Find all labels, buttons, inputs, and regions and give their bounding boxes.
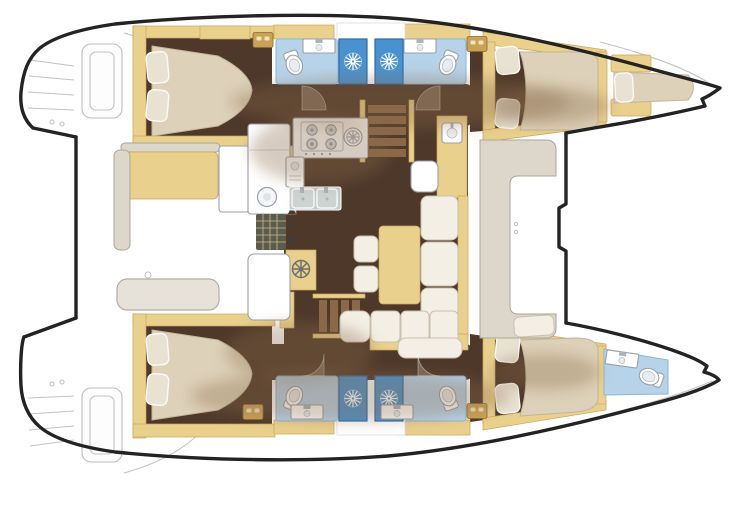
nav-seat xyxy=(411,161,438,192)
stair-rail xyxy=(313,294,365,298)
pillow-icon xyxy=(146,89,170,122)
hatch-mat xyxy=(256,214,286,250)
cabin-wall xyxy=(133,26,146,148)
fwd-cockpit-c-bench xyxy=(480,140,556,338)
sink-drain xyxy=(302,198,305,201)
wardrobe-drawers-icon xyxy=(467,37,487,52)
saloon-side-wall xyxy=(458,196,468,338)
haze-blob xyxy=(225,322,375,382)
deck-fitting xyxy=(514,222,517,225)
cockpit-bench-cushion xyxy=(124,152,218,199)
sink-drain xyxy=(326,198,329,201)
sink-faucet xyxy=(324,187,328,193)
cockpit-side-bench xyxy=(114,150,130,250)
forward-cockpit xyxy=(480,140,556,338)
cockpit-side-table xyxy=(219,146,249,212)
head-cabinet xyxy=(274,420,334,434)
settee-seat-cushion xyxy=(401,311,429,342)
haze-blob xyxy=(250,116,390,184)
cabin-wall xyxy=(133,314,146,438)
port-helm-seat xyxy=(82,44,122,118)
cockpit-bench-back xyxy=(121,143,220,152)
washbasin-icon xyxy=(404,39,436,53)
washbasin-icon xyxy=(303,39,335,53)
haze-blob xyxy=(190,370,510,422)
wet-bar-sink-drain xyxy=(263,193,271,201)
cabin-wall xyxy=(133,424,275,437)
dinette-table xyxy=(379,226,420,304)
settee-seat-cushion xyxy=(430,311,458,342)
stool xyxy=(354,236,378,262)
pillow-icon xyxy=(146,373,170,406)
sink-faucet xyxy=(300,187,304,193)
floor-plan-svg xyxy=(0,0,733,506)
helm-wheel-icon xyxy=(293,261,310,278)
settee-back-cushion xyxy=(421,242,458,286)
forward-crossbeam-outline xyxy=(559,133,566,323)
deck-fitting xyxy=(514,230,517,233)
haze-blob xyxy=(490,354,600,390)
settee-back-cushion xyxy=(421,196,458,240)
head-cabinet xyxy=(398,420,470,435)
pillow-icon xyxy=(495,46,521,75)
head-cabinet xyxy=(274,25,334,39)
cockpit-locker xyxy=(248,254,290,320)
stool xyxy=(354,266,378,292)
pillow-icon xyxy=(614,73,633,103)
shower-divider xyxy=(367,30,374,84)
shower-rose-icon xyxy=(381,53,398,70)
catamaran-floor-plan xyxy=(0,0,733,506)
cockpit-table xyxy=(117,279,219,310)
shower-rose-icon xyxy=(345,53,362,70)
wardrobe-drawers-icon xyxy=(253,33,273,48)
cabin-shelf xyxy=(200,26,250,39)
saloon-fwd-bench xyxy=(398,338,462,358)
fwd-cockpit-cushion xyxy=(513,315,554,338)
pillow-icon xyxy=(146,51,170,84)
settee-seat-cushion xyxy=(371,311,400,342)
cockpit-table-ring xyxy=(145,272,151,278)
pillow-icon xyxy=(146,333,170,366)
haze-blob xyxy=(494,88,610,124)
